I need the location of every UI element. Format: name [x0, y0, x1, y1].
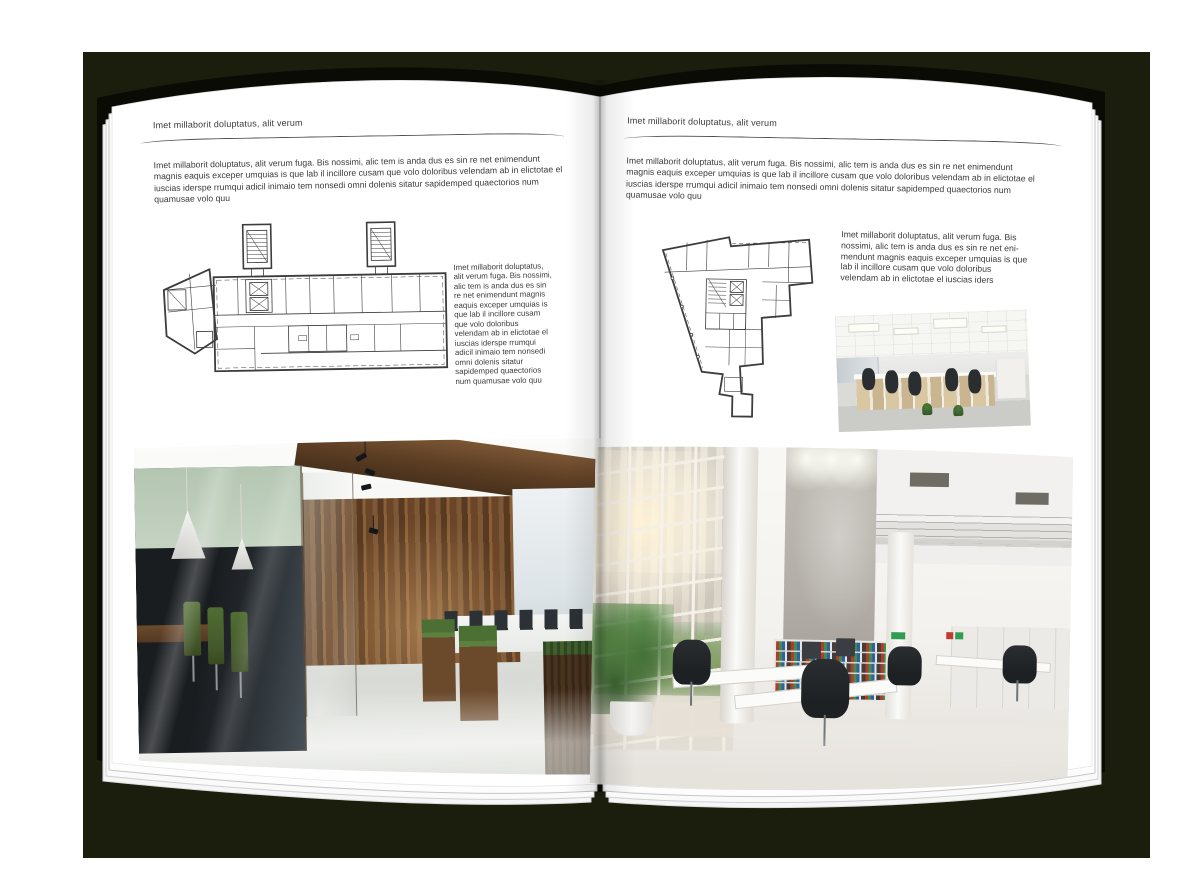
right-page-header: Imet millaborit doluptatus, alit verum [627, 115, 777, 128]
ceiling-grid [835, 310, 1028, 358]
concrete-feature-wall [783, 446, 877, 649]
ceiling-light-panel [933, 317, 968, 329]
wood-planter-box [421, 619, 455, 701]
black-office-chair [908, 371, 922, 396]
black-office-chair [967, 369, 981, 394]
ceiling-light-panel [849, 323, 880, 333]
left-side-text: Imet millaborit doluptatus, alit verum f… [453, 261, 555, 386]
black-office-chair [888, 646, 922, 685]
vent-slot [1015, 492, 1049, 505]
right-header-rule [624, 134, 1062, 151]
black-office-chair [1002, 645, 1036, 684]
open-plan-office-photo [835, 310, 1031, 433]
glass-reflection [134, 466, 307, 754]
black-office-chair [944, 368, 958, 392]
track-spotlight [361, 484, 372, 491]
small-plant [953, 405, 963, 417]
left-floor-plan-figure [159, 219, 454, 416]
floor-plan-irregular-building-drawing [640, 220, 835, 423]
white-cabinet [996, 358, 1026, 398]
right-page: Imet millaborit doluptatus, alit verum I… [588, 73, 1094, 797]
left-page-header: Imet millaborit doluptatus, alit verum [153, 118, 303, 131]
safety-sign [946, 632, 954, 639]
exit-sign [891, 633, 905, 640]
floor-plan-wide-building-drawing [159, 219, 454, 416]
right-intro-paragraph: Imet millaborit doluptatus, alit verum f… [626, 155, 1042, 208]
safety-sign [955, 632, 963, 639]
left-intro-paragraph: Imet millaborit doluptatus, alit verum f… [154, 153, 567, 206]
potted-plant-leaves [589, 603, 674, 716]
vent-slot [910, 473, 948, 488]
right-side-text: Imet millaborit doluptatus, alit verum f… [840, 229, 1029, 286]
glass-partition [302, 471, 358, 717]
monitor [802, 641, 821, 659]
ceiling-light-panel [893, 327, 918, 335]
black-office-chair [801, 659, 850, 719]
monitor [836, 639, 855, 657]
polished-floor [589, 728, 1068, 799]
ceiling-light-panel [981, 325, 1006, 333]
left-page: Imet millaborit doluptatus, alit verum I… [112, 64, 612, 787]
black-office-chair [673, 639, 712, 685]
loft-office-interior-photo [133, 437, 606, 785]
right-floor-plan-figure [640, 220, 835, 423]
left-header-rule [140, 132, 564, 148]
small-plant [922, 403, 932, 415]
magazine-mockup-canvas: Imet millaborit doluptatus, alit verum I… [0, 0, 1200, 891]
black-office-chair [885, 370, 899, 394]
bright-atrium-office-photo [589, 443, 1073, 799]
black-office-chair [862, 368, 876, 390]
